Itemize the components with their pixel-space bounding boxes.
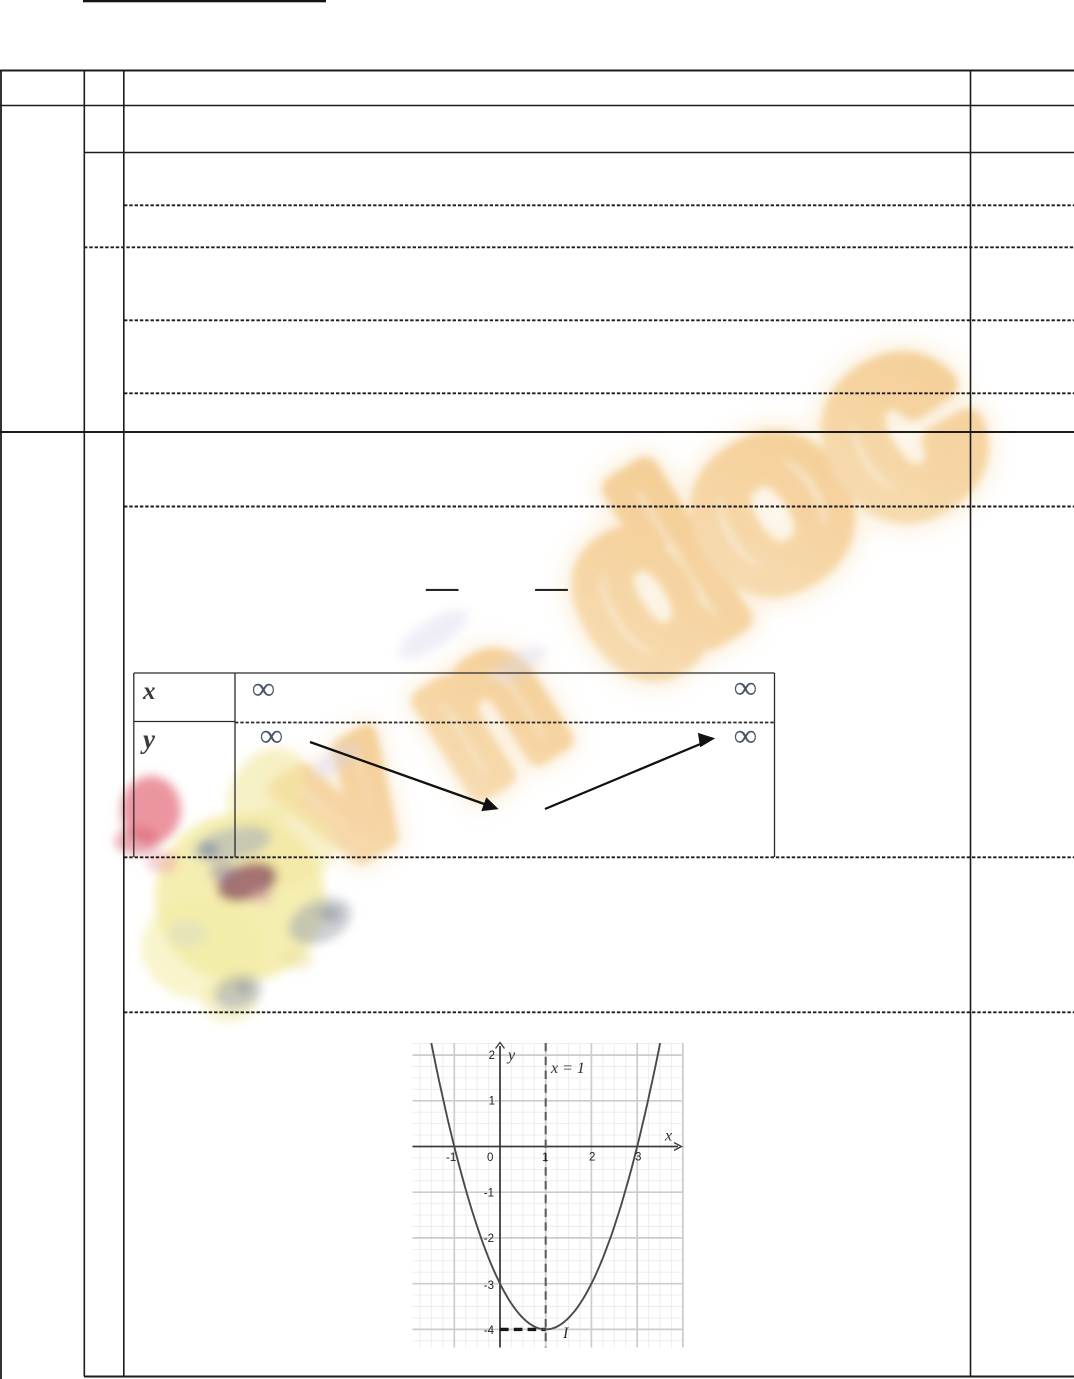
svg-text:3: 3: [635, 1152, 641, 1164]
svg-text:y: y: [506, 1047, 516, 1064]
svg-text:1: 1: [542, 1152, 548, 1164]
svg-text:∞: ∞: [260, 717, 283, 753]
svg-text:1: 1: [489, 1096, 495, 1108]
svg-text:-2: -2: [484, 1233, 494, 1245]
svg-text:y: y: [140, 724, 156, 754]
svg-text:2: 2: [589, 1152, 595, 1164]
svg-text:x = 1: x = 1: [550, 1060, 585, 1077]
svg-text:∞: ∞: [252, 670, 275, 706]
svg-text:x: x: [142, 678, 156, 705]
svg-text:0: 0: [487, 1152, 493, 1164]
svg-text:x: x: [664, 1128, 672, 1145]
svg-text:∞: ∞: [734, 717, 757, 753]
svg-text:∞: ∞: [734, 669, 757, 705]
svg-text:-1: -1: [484, 1188, 494, 1200]
svg-text:I: I: [562, 1325, 569, 1342]
svg-text:-4: -4: [484, 1325, 495, 1337]
svg-text:2: 2: [489, 1050, 495, 1062]
svg-text:-1: -1: [446, 1152, 456, 1164]
svg-text:-3: -3: [484, 1280, 494, 1292]
